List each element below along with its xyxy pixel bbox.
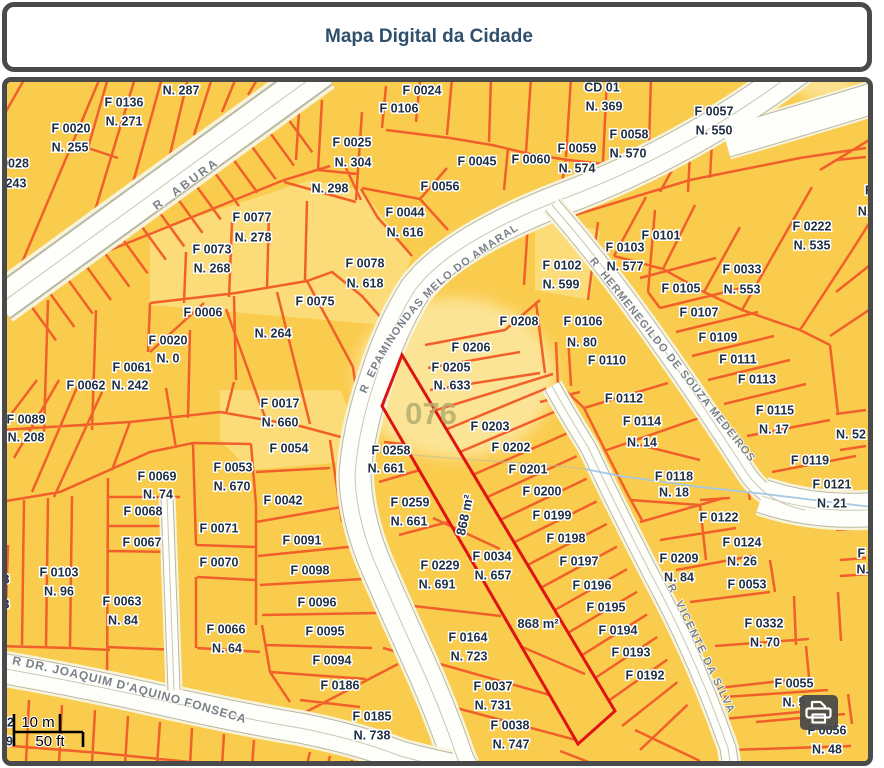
svg-text:868 m²: 868 m²: [517, 616, 559, 631]
svg-text:N. 599: N. 599: [543, 278, 580, 292]
svg-text:N. 747: N. 747: [493, 738, 530, 752]
svg-text:F 00: F 00: [857, 547, 868, 561]
svg-text:F 0193: F 0193: [612, 646, 651, 660]
svg-text:F 0101: F 0101: [642, 229, 681, 243]
svg-text:F 0078: F 0078: [346, 257, 385, 271]
svg-text:10 m: 10 m: [21, 714, 54, 731]
svg-text:N. 52: N. 52: [836, 428, 866, 442]
svg-text:N. 738: N. 738: [354, 729, 391, 743]
svg-text:F 0054: F 0054: [270, 442, 309, 456]
svg-text:F 0075: F 0075: [296, 295, 335, 309]
svg-text:F 0203: F 0203: [471, 420, 510, 434]
svg-text:F 0020: F 0020: [149, 334, 188, 348]
svg-text:F 0071: F 0071: [200, 522, 239, 536]
svg-text:F 0045: F 0045: [458, 155, 497, 169]
svg-text:F 0136: F 0136: [105, 96, 144, 110]
svg-text:N. 84: N. 84: [108, 614, 138, 628]
svg-text:F 0053: F 0053: [214, 461, 253, 475]
svg-text:F 0055: F 0055: [775, 677, 814, 691]
svg-text:F 0206: F 0206: [452, 341, 491, 355]
svg-text:F 0200: F 0200: [523, 485, 562, 499]
svg-text:N. 691: N. 691: [419, 578, 456, 592]
svg-text:0028: 0028: [7, 157, 29, 171]
svg-text:F 0098: F 0098: [291, 564, 330, 578]
svg-text:F 0066: F 0066: [207, 623, 246, 637]
svg-text:N. 255: N. 255: [52, 141, 89, 155]
svg-text:F 0037: F 0037: [474, 680, 513, 694]
svg-text:F 0186: F 0186: [321, 679, 360, 693]
svg-text:F 0122: F 0122: [700, 511, 739, 525]
svg-text:F 0044: F 0044: [386, 206, 425, 220]
svg-text:N. 70: N. 70: [750, 636, 780, 650]
svg-text:F 0058: F 0058: [610, 128, 649, 142]
svg-text:F 0198: F 0198: [547, 532, 586, 546]
svg-text:F 0077: F 0077: [233, 211, 272, 225]
svg-text:N. 18: N. 18: [659, 486, 689, 500]
svg-text:F 0109: F 0109: [699, 331, 738, 345]
svg-text:N. 64: N. 64: [212, 642, 242, 656]
svg-text:F 0042: F 0042: [264, 494, 303, 508]
svg-text:F 0209: F 0209: [660, 552, 699, 566]
svg-text:F 0073: F 0073: [193, 243, 232, 257]
svg-text:N. 550: N. 550: [696, 124, 733, 138]
svg-text:F 0196: F 0196: [573, 579, 612, 593]
svg-text:N. 21: N. 21: [817, 497, 847, 511]
svg-text:F 0061: F 0061: [113, 361, 152, 375]
svg-text:F 0111: F 0111: [719, 353, 757, 367]
svg-text:09: 09: [7, 735, 13, 749]
svg-text:F 0068: F 0068: [124, 505, 163, 519]
svg-text:F 0208: F 0208: [500, 315, 539, 329]
svg-text:N. 535: N. 535: [794, 239, 831, 253]
svg-text:F 0034: F 0034: [473, 550, 512, 564]
svg-text:F 0006: F 0006: [184, 306, 223, 320]
svg-text:N. 264: N. 264: [255, 327, 292, 341]
svg-text:F 0070: F 0070: [200, 556, 239, 570]
svg-text:N. 14: N. 14: [627, 436, 657, 450]
svg-text:N. 84: N. 84: [664, 571, 694, 585]
svg-text:F 0205: F 0205: [432, 361, 471, 375]
svg-text:F 0091: F 0091: [283, 534, 322, 548]
svg-text:F 0194: F 0194: [599, 624, 638, 638]
svg-text:N. 369: N. 369: [586, 100, 623, 114]
svg-text:F 0020: F 0020: [52, 122, 91, 136]
svg-text:N. 731: N. 731: [475, 699, 512, 713]
svg-text:N. 96: N. 96: [44, 585, 74, 599]
svg-text:F 0121: F 0121: [813, 478, 852, 492]
svg-text:F 0332: F 0332: [745, 617, 784, 631]
svg-text:F 0062: F 0062: [67, 379, 106, 393]
svg-text:CD 01: CD 01: [584, 82, 619, 95]
svg-text:N. 660: N. 660: [262, 416, 299, 430]
svg-text:N. 661: N. 661: [368, 462, 405, 476]
svg-text:F 0067: F 0067: [123, 536, 162, 550]
svg-text:F 0059: F 0059: [558, 142, 597, 156]
svg-text:F 0222: F 0222: [793, 220, 832, 234]
svg-text:076: 076: [405, 396, 457, 431]
svg-text:F 0259: F 0259: [391, 496, 430, 510]
svg-text:F 0053: F 0053: [728, 578, 767, 592]
svg-text:N. 577: N. 577: [607, 260, 644, 274]
svg-text:F 0106: F 0106: [380, 102, 419, 116]
svg-text:N. 657: N. 657: [475, 569, 512, 583]
svg-text:N. 287: N. 287: [163, 84, 200, 98]
svg-text:F 0112: F 0112: [605, 392, 643, 406]
svg-text:F 0185: F 0185: [353, 710, 392, 724]
svg-text:F 0229: F 0229: [421, 559, 460, 573]
svg-text:N. 723: N. 723: [451, 650, 488, 664]
svg-text:N. 242: N. 242: [112, 379, 149, 393]
svg-text:N. 268: N. 268: [194, 262, 231, 276]
svg-text:F 0106: F 0106: [564, 315, 603, 329]
svg-text:N. 17: N. 17: [759, 423, 789, 437]
svg-text:N. 80: N. 80: [567, 336, 597, 350]
svg-text:F 0113: F 0113: [738, 373, 776, 387]
svg-text:N. 616: N. 616: [387, 226, 424, 240]
svg-text:N. 574: N. 574: [559, 162, 596, 176]
svg-text:F 0103: F 0103: [606, 241, 645, 255]
svg-text:N. 661: N. 661: [391, 515, 428, 529]
svg-text:F 0017: F 0017: [261, 397, 300, 411]
svg-text:F 0095: F 0095: [306, 625, 345, 639]
svg-text:F 0057: F 0057: [695, 105, 734, 119]
svg-text:F 0103: F 0103: [40, 566, 79, 580]
svg-text:F 0201: F 0201: [509, 463, 548, 477]
svg-text:N.: N.: [858, 205, 868, 219]
svg-text:F 0202: F 0202: [492, 441, 531, 455]
svg-text:F 0258: F 0258: [372, 444, 411, 458]
svg-text:F 0124: F 0124: [723, 536, 762, 550]
svg-text:243: 243: [7, 177, 26, 191]
svg-text:F 0038: F 0038: [491, 719, 530, 733]
svg-text:N. 633: N. 633: [434, 379, 471, 393]
svg-text:F 0033: F 0033: [723, 263, 762, 277]
svg-text:F 0039: F 0039: [504, 761, 543, 762]
svg-text:N. 208: N. 208: [8, 431, 45, 445]
svg-text:N. 304: N. 304: [335, 156, 372, 170]
svg-text:N. 0: N. 0: [157, 352, 180, 366]
svg-text:F 0164: F 0164: [449, 631, 488, 645]
svg-text:F 0119: F 0119: [791, 454, 829, 468]
svg-text:F 0069: F 0069: [138, 470, 177, 484]
svg-text:F 0063: F 0063: [103, 595, 142, 609]
svg-text:F 0102: F 0102: [543, 259, 582, 273]
svg-text:F 0094: F 0094: [313, 654, 352, 668]
svg-text:N. 618: N. 618: [347, 277, 384, 291]
svg-text:F 0107: F 0107: [680, 306, 719, 320]
svg-text:F 0118: F 0118: [655, 470, 693, 484]
svg-text:F 0024: F 0024: [403, 84, 442, 98]
svg-text:N. 48: N. 48: [812, 743, 842, 757]
svg-text:50 ft: 50 ft: [35, 733, 65, 750]
svg-text:F 0025: F 0025: [333, 136, 372, 150]
svg-text:F 0115: F 0115: [756, 404, 794, 418]
svg-text:F 0192: F 0192: [626, 669, 665, 683]
svg-text:3: 3: [7, 598, 10, 612]
svg-text:F 0105: F 0105: [662, 282, 701, 296]
svg-text:F 0096: F 0096: [298, 596, 337, 610]
svg-text:F 0056: F 0056: [421, 180, 460, 194]
svg-text:N. 570: N. 570: [610, 147, 647, 161]
svg-text:N. 553: N. 553: [724, 283, 761, 297]
svg-text:F 0199: F 0199: [533, 509, 572, 523]
svg-text:N. 271: N. 271: [106, 115, 143, 129]
svg-text:F 0060: F 0060: [512, 153, 551, 167]
svg-text:N. 74: N. 74: [143, 488, 173, 502]
svg-text:F 0089: F 0089: [7, 413, 46, 427]
svg-text:F 0114: F 0114: [623, 415, 661, 429]
svg-text:F 0: F 0: [865, 184, 868, 198]
svg-text:N. 4: N. 4: [857, 563, 868, 577]
svg-text:F 0197: F 0197: [560, 555, 599, 569]
svg-text:N. 670: N. 670: [214, 480, 251, 494]
svg-text:N. 298: N. 298: [312, 182, 349, 196]
svg-text:F 0110: F 0110: [588, 354, 626, 368]
svg-text:N. 278: N. 278: [235, 231, 272, 245]
svg-text:N. 26: N. 26: [727, 555, 757, 569]
svg-text:F 0195: F 0195: [587, 601, 626, 615]
svg-text:8: 8: [7, 573, 10, 587]
